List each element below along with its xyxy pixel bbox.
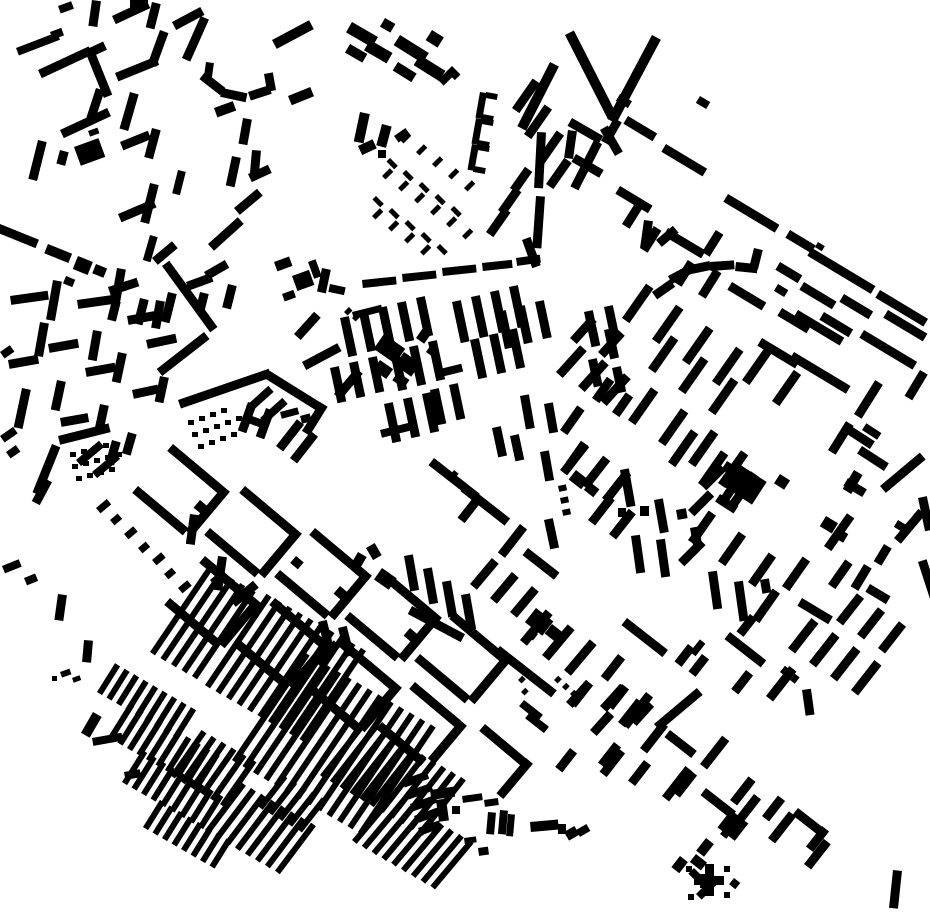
building-footprint: [378, 150, 386, 158]
building-footprint: [388, 220, 399, 231]
building-footprint: [188, 420, 194, 425]
building-footprint: [628, 760, 651, 786]
building-footprint: [534, 132, 546, 188]
building-footprint: [81, 449, 87, 454]
building-footprint: [76, 476, 82, 481]
building-footprint: [414, 192, 425, 203]
building-footprint: [799, 282, 836, 309]
building-footprint: [88, 330, 102, 361]
building-footprint: [471, 295, 489, 338]
building-footprint: [880, 453, 926, 493]
building-footprint: [807, 248, 875, 294]
building-footprint: [802, 689, 815, 716]
building-footprint: [2, 559, 22, 573]
building-footprint: [234, 189, 263, 215]
building-footprint: [640, 721, 668, 753]
building-footprint: [498, 524, 527, 558]
building-footprint: [199, 416, 205, 421]
building-footprint: [464, 180, 475, 191]
building-footprint: [209, 440, 215, 445]
building-footprint: [122, 432, 137, 456]
building-footprint: [854, 380, 883, 419]
building-footprint: [724, 866, 730, 872]
building-footprint: [789, 352, 850, 394]
building-footprint: [60, 413, 89, 427]
building-footprint: [774, 474, 790, 490]
building-footprint: [167, 444, 223, 493]
building-footprint: [498, 810, 508, 835]
building-footprint: [92, 264, 107, 278]
building-footprint: [179, 783, 204, 818]
building-footprint: [359, 311, 376, 352]
building-footprint: [44, 244, 72, 263]
building-footprint: [282, 290, 296, 302]
building-footprint: [58, 423, 111, 444]
building-footprint: [292, 270, 314, 291]
building-footprint: [74, 138, 105, 166]
building-footprint: [518, 676, 526, 684]
building-footprint: [77, 295, 114, 309]
building-footprint: [362, 276, 397, 288]
building-footprint: [397, 301, 414, 342]
building-footprint: [280, 407, 299, 418]
building-footprint: [661, 144, 707, 176]
building-footprint: [564, 639, 597, 675]
building-footprint: [686, 866, 692, 872]
building-footprint: [708, 377, 738, 415]
building-footprint: [388, 208, 399, 219]
building-footprint: [560, 442, 589, 476]
building-footprint: [60, 669, 71, 678]
building-footprint: [809, 632, 839, 667]
building-footprint: [590, 711, 614, 736]
building-footprint: [0, 427, 18, 443]
building-footprint: [118, 709, 144, 746]
building-footprint: [88, 128, 99, 137]
building-footprint: [724, 632, 766, 667]
building-footprint: [105, 455, 111, 460]
building-footprint: [164, 568, 176, 580]
building-footprint: [774, 284, 788, 297]
building-footprint: [731, 670, 753, 694]
building-footprint: [138, 542, 150, 554]
building-footprint: [448, 168, 459, 179]
building-footprint: [85, 363, 116, 377]
building-footprint: [141, 761, 166, 796]
building-footprint: [398, 180, 409, 191]
building-footprint: [214, 101, 236, 117]
building-footprint: [723, 194, 779, 233]
building-footprint: [700, 736, 729, 770]
building-footprint: [208, 217, 244, 250]
building-footprint: [178, 580, 192, 593]
building-footprint: [562, 508, 571, 516]
building-footprint: [889, 870, 902, 909]
building-footprint: [631, 535, 645, 574]
building-footprint: [81, 712, 102, 738]
building-footprint: [828, 421, 854, 455]
building-footprint: [442, 580, 457, 617]
building-footprint: [204, 62, 214, 77]
building-footprint: [110, 514, 122, 526]
building-footprint: [146, 725, 172, 762]
building-footprint: [696, 838, 714, 857]
building-footprint: [137, 720, 163, 757]
building-footprint: [535, 300, 552, 339]
building-footprint: [214, 424, 220, 429]
building-footprint: [172, 170, 186, 195]
building-footprint: [607, 35, 660, 124]
building-footprint: [544, 402, 558, 433]
building-footprint: [418, 182, 429, 193]
building-footprint: [416, 144, 427, 155]
building-footprint: [442, 264, 477, 276]
building-footprint: [344, 307, 352, 315]
building-footprint: [272, 20, 314, 49]
building-footprint: [404, 220, 415, 231]
building-footprint: [151, 766, 176, 801]
building-footprint: [290, 556, 303, 569]
building-footprint: [485, 92, 498, 100]
building-footprint: [156, 731, 182, 768]
building-footprint: [696, 96, 710, 109]
building-footprint: [656, 539, 670, 578]
building-footprint: [0, 345, 14, 358]
building-footprint: [727, 282, 766, 310]
building-footprint: [48, 339, 79, 353]
building-footprint: [510, 167, 532, 193]
building-footprint: [859, 330, 917, 370]
building-footprint: [432, 156, 443, 167]
building-footprint: [189, 788, 214, 823]
building-footprint: [478, 847, 489, 856]
building-footprint: [372, 196, 383, 207]
building-footprint: [73, 256, 93, 275]
building-footprint: [260, 398, 288, 424]
building-footprint: [473, 166, 486, 174]
building-footprint: [403, 397, 420, 438]
building-footprint: [221, 408, 227, 413]
building-footprint: [540, 450, 554, 481]
building-footprint: [530, 820, 559, 832]
building-footprint: [490, 572, 519, 604]
building-footprint: [426, 30, 444, 48]
building-footprint: [124, 526, 138, 539]
building-footprint: [560, 405, 585, 435]
building-footprint: [34, 322, 49, 357]
building-footprint: [775, 262, 802, 283]
building-footprint: [688, 654, 709, 677]
building-footprint: [402, 270, 437, 282]
building-footprint: [510, 434, 524, 461]
building-footprint: [132, 486, 188, 535]
building-footprint: [192, 432, 198, 437]
building-footprint: [60, 108, 111, 138]
building-footprint: [640, 506, 649, 516]
building-footprint: [386, 158, 397, 169]
building-footprint: [532, 196, 545, 249]
building-footprint: [678, 356, 708, 394]
building-footprint: [51, 380, 66, 411]
building-footprint: [554, 676, 562, 684]
building-footprint: [288, 87, 314, 105]
building-footprint: [544, 518, 559, 549]
building-footprint: [865, 584, 890, 604]
building-footprint: [742, 349, 771, 385]
building-footprint: [83, 461, 89, 466]
building-footprint: [622, 284, 653, 324]
building-footprint: [265, 371, 321, 410]
building-footprint: [874, 544, 892, 566]
building-footprint: [734, 581, 748, 622]
building-footprint: [462, 793, 483, 803]
building-footprint: [905, 370, 928, 400]
building-footprint: [556, 345, 587, 378]
building-footprint: [450, 206, 461, 217]
building-footprint: [274, 257, 292, 272]
building-footprint: [724, 892, 730, 898]
building-footprint: [340, 316, 357, 357]
building-footprint: [436, 244, 447, 255]
building-footprint: [96, 499, 111, 513]
building-footprint: [486, 812, 496, 835]
building-footprint: [496, 758, 532, 799]
building-footprint: [152, 241, 178, 265]
building-footprint: [127, 714, 153, 751]
building-footprint: [70, 452, 76, 457]
building-footprint: [446, 216, 457, 227]
building-footprint: [671, 856, 687, 873]
building-footprint: [857, 446, 889, 471]
building-footprint: [434, 194, 445, 205]
building-footprint: [152, 552, 166, 565]
building-footprint: [148, 30, 169, 67]
building-footprint: [376, 124, 391, 148]
building-footprint: [309, 528, 365, 577]
building-footprint: [231, 432, 237, 437]
building-footprint: [160, 772, 185, 807]
building-footprint: [98, 470, 104, 475]
building-footprint: [702, 230, 723, 257]
building-footprint: [430, 204, 441, 215]
building-footprint: [623, 116, 657, 141]
building-footprint: [698, 269, 722, 299]
building-footprint: [452, 300, 470, 343]
building-footprint: [109, 467, 115, 472]
building-footprint: [839, 294, 873, 319]
building-footprint: [220, 88, 247, 102]
building-footprint: [56, 150, 68, 166]
building-footprint: [87, 473, 93, 478]
building-footprint: [120, 131, 151, 151]
building-footprint: [484, 798, 499, 807]
building-footprint: [718, 532, 746, 567]
building-footprint: [380, 18, 395, 33]
building-footprint: [38, 46, 93, 78]
building-footprint: [63, 276, 75, 287]
building-footprint: [492, 426, 507, 457]
building-footprint: [225, 420, 231, 425]
building-footprint: [788, 618, 818, 653]
building-footprint: [449, 383, 465, 420]
building-footprint: [468, 654, 512, 704]
building-footprint: [238, 118, 251, 145]
building-footprint: [621, 618, 668, 657]
building-footprint: [482, 260, 513, 271]
building-footprint: [674, 644, 695, 667]
building-footprint: [918, 559, 930, 598]
building-footprint: [416, 296, 433, 337]
building-footprint: [404, 554, 419, 591]
building-footprint: [246, 386, 274, 412]
building-footprint: [664, 730, 696, 758]
building-footprint: [423, 567, 438, 604]
building-footprint: [851, 660, 881, 695]
building-footprint: [506, 814, 515, 837]
building-footprint: [186, 486, 230, 536]
building-footprint: [878, 621, 906, 653]
building-footprint: [364, 40, 393, 63]
building-footprint: [700, 874, 714, 888]
building-footprint: [558, 484, 567, 492]
building-footprint: [239, 486, 295, 535]
map-canvas: [0, 0, 930, 924]
building-footprint: [564, 826, 579, 841]
building-footprint: [92, 733, 123, 746]
building-footprint: [132, 385, 159, 399]
building-footprint: [729, 878, 740, 889]
building-footprint: [828, 559, 853, 589]
building-footprint: [462, 228, 473, 239]
building-footprint: [676, 508, 688, 520]
building-footprint: [72, 675, 81, 682]
building-footprint: [72, 464, 78, 469]
building-footprint: [420, 232, 431, 243]
building-footprint: [762, 796, 785, 822]
building-footprint: [0, 224, 39, 248]
building-footprint: [328, 284, 345, 295]
building-footprint: [749, 248, 763, 270]
building-footprint: [520, 394, 535, 429]
building-footprint: [222, 284, 237, 309]
building-footprint: [682, 326, 713, 366]
building-footprint: [470, 558, 499, 590]
building-footprint: [690, 854, 707, 870]
building-footprint: [302, 343, 342, 370]
building-footprint: [8, 355, 39, 369]
building-footprint: [94, 458, 100, 463]
building-footprint: [479, 724, 528, 767]
building-footprint: [6, 445, 20, 458]
building-footprint: [452, 806, 460, 814]
building-footprint: [366, 543, 382, 560]
building-footprint: [663, 228, 705, 258]
building-footprint: [652, 305, 683, 345]
building-footprint: [52, 676, 57, 681]
building-footprint: [546, 158, 572, 189]
building-footprint: [384, 402, 401, 443]
building-footprint: [782, 557, 810, 592]
building-footprint: [354, 112, 370, 143]
building-footprint: [170, 777, 195, 812]
building-footprint: [712, 347, 743, 387]
building-footprint: [382, 168, 393, 179]
building-footprint: [122, 750, 147, 785]
building-footprint: [564, 130, 577, 159]
building-footprint: [654, 498, 669, 533]
building-footprint: [708, 571, 722, 610]
building-footprint: [210, 412, 216, 417]
building-footprint: [203, 428, 209, 433]
building-footprint: [815, 242, 825, 251]
building-footprint: [220, 436, 226, 441]
building-footprint: [581, 456, 610, 490]
building-footprint: [797, 598, 832, 624]
building-footprint: [470, 338, 487, 379]
building-footprint: [88, 0, 101, 27]
building-footprint: [294, 312, 321, 340]
building-footprint: [521, 688, 529, 696]
building-footprint: [404, 232, 415, 243]
building-footprint: [428, 340, 445, 381]
building-footprint: [402, 170, 413, 181]
building-footprint: [565, 30, 617, 119]
building-footprint: [560, 496, 569, 504]
building-footprint: [772, 370, 801, 406]
building-footprint: [760, 578, 771, 593]
building-footprint: [648, 335, 678, 373]
building-footprint: [857, 607, 885, 639]
building-footprint: [28, 140, 46, 181]
building-footprint: [555, 748, 577, 772]
building-footprint: [82, 640, 93, 663]
building-footprint: [628, 387, 658, 425]
building-footprint: [345, 44, 367, 63]
building-footprint: [622, 202, 643, 229]
building-footprint: [836, 593, 864, 625]
building-footprint: [24, 574, 38, 586]
building-footprint: [372, 208, 383, 219]
building-footprint: [393, 62, 417, 82]
building-footprint: [10, 291, 49, 305]
building-footprint: [116, 452, 122, 457]
building-footprint: [50, 28, 64, 40]
building-footprint: [58, 1, 74, 13]
building-footprint: [103, 443, 109, 448]
building-footprint: [688, 894, 694, 900]
building-footprint: [420, 244, 431, 255]
building-footprint: [236, 416, 242, 421]
building-footprint: [522, 548, 559, 580]
building-footprint: [414, 55, 446, 81]
building-footprint: [830, 646, 860, 681]
building-footprint: [752, 589, 780, 624]
figure-ground-map: [0, 0, 930, 924]
building-footprint: [198, 444, 204, 449]
building-footprint: [130, 0, 148, 8]
building-footprint: [146, 334, 177, 349]
building-footprint: [601, 654, 625, 682]
building-footprint: [562, 683, 570, 691]
building-footprint: [54, 594, 67, 621]
building-footprint: [204, 260, 229, 280]
building-footprint: [46, 280, 62, 321]
building-footprint: [120, 92, 139, 131]
building-footprint: [14, 388, 31, 429]
building-footprint: [92, 446, 98, 451]
building-footprint: [588, 495, 615, 526]
building-footprint: [226, 156, 241, 187]
